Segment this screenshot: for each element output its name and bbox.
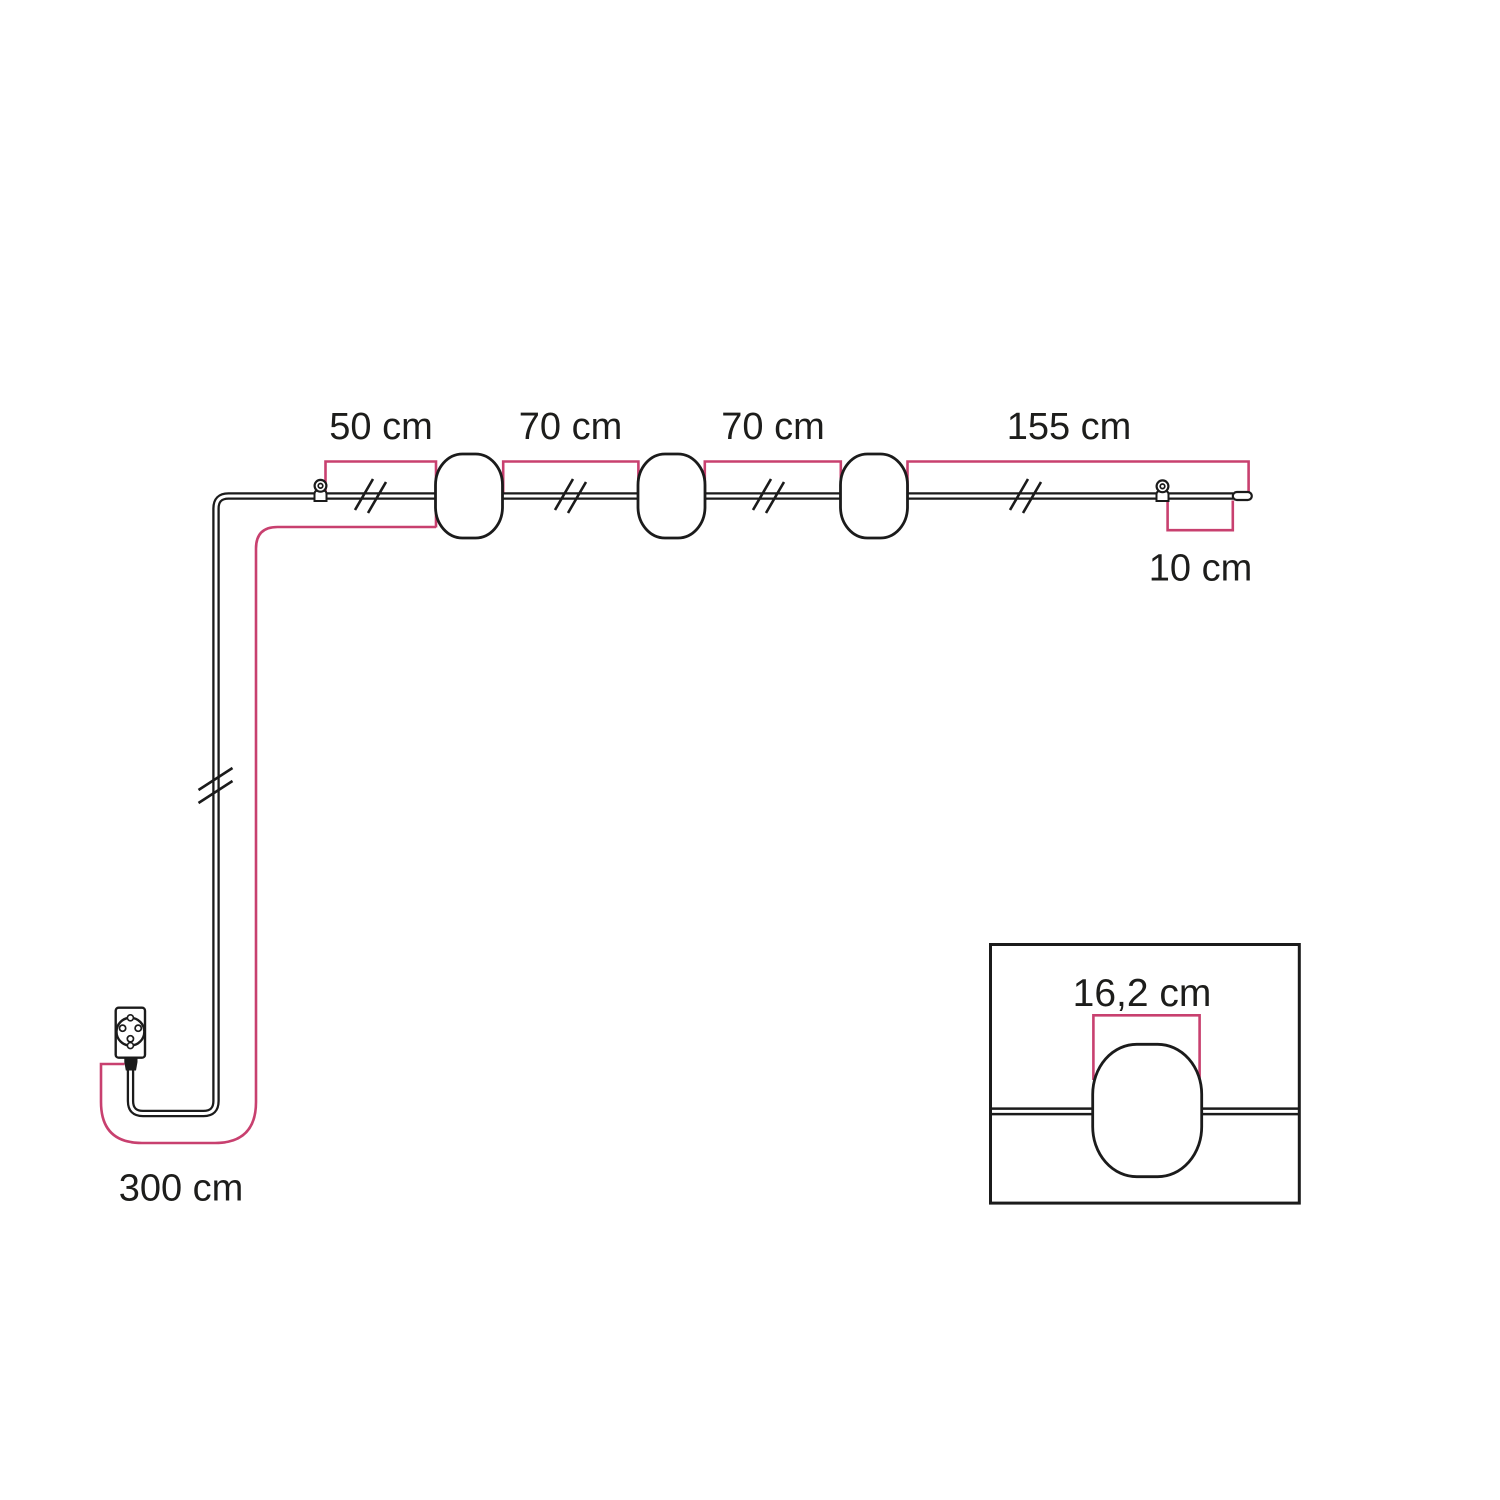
plug-pin-hole-left [120, 1025, 126, 1031]
hook-2 [1157, 480, 1169, 501]
plug-cable-grip [124, 1058, 137, 1071]
dimension-lines [101, 462, 1249, 1144]
diagram-canvas: 16,2 cm 50 cm 70 cm 70 cm 155 cm 10 cm 3… [0, 0, 1500, 1500]
plug-pin-hole-bottom [127, 1036, 133, 1042]
dimension-label-70cm-a: 70 cm [519, 406, 622, 448]
hook-1 [315, 480, 327, 501]
cable-core-gap [131, 496, 1234, 1114]
lamp-holder-2-icon [638, 454, 705, 538]
dimension-line-155cm [908, 462, 1249, 493]
dimension-label-50cm: 50 cm [329, 406, 432, 448]
plug-earth-notch-top [127, 1015, 133, 1021]
plug-icon [116, 1008, 145, 1071]
dimension-line-10cm [1168, 501, 1233, 531]
dimension-label-155cm: 155 cm [1007, 406, 1132, 448]
hook-eyelet-hole [1160, 484, 1165, 489]
lamp-holder-1-icon [436, 454, 503, 538]
string-light-diagram-page: 16,2 cm 50 cm 70 cm 70 cm 155 cm 10 cm 3… [0, 0, 1500, 1500]
inset-lamp-holder-icon [1093, 1044, 1202, 1176]
lamp-holder-3-icon [841, 454, 908, 538]
cable-end-icon [1233, 492, 1252, 500]
dimension-line-70cm-a [503, 462, 638, 493]
plug-pin-hole-right [135, 1025, 141, 1031]
dimension-label-10cm: 10 cm [1149, 548, 1252, 590]
dimension-label-70cm-b: 70 cm [721, 406, 824, 448]
dimension-label-300cm: 300 cm [119, 1168, 244, 1210]
dimension-line-70cm-b [705, 462, 841, 493]
plug-earth-notch-bottom [127, 1043, 133, 1049]
dimension-line-300cm [101, 527, 436, 1143]
power-cable [131, 496, 1234, 1114]
cable-outer-line [131, 496, 1234, 1114]
dimension-label-16-2cm: 16,2 cm [1073, 972, 1212, 1015]
lamp-detail-inset: 16,2 cm [991, 945, 1300, 1204]
hook-eyelet-hole [318, 484, 323, 489]
